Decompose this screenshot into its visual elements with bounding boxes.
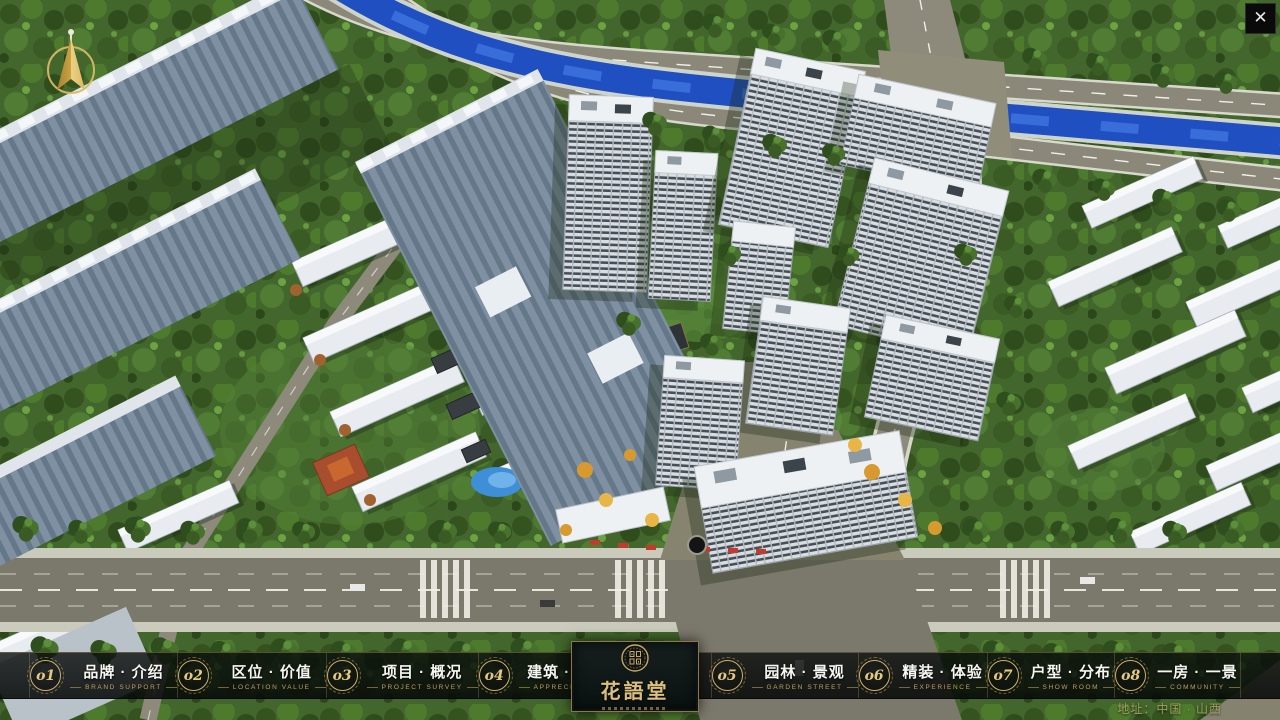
nav-title: 品牌 · 介绍 [83,661,163,682]
nav-item-room-views[interactable]: o8 一房 · 一景 COMMUNITY [1114,653,1239,698]
masterplan-render [0,0,1280,720]
nav-badge-08: o8 [1115,660,1146,691]
address-label: 地址：中国 · 山西 [1117,700,1222,717]
nav-item-floorplans[interactable]: o7 户型 · 分布 SHOW ROOM [987,653,1115,698]
close-button[interactable]: ✕ [1245,3,1276,34]
nav-number: o1 [36,668,55,684]
project-logo-panel[interactable]: 花語堂 [571,641,699,712]
nav-title: 区位 · 价值 [232,661,312,682]
nav-title: 项目 · 概况 [382,661,462,682]
nav-badge-03: o3 [327,660,358,691]
nav-badge-02: o2 [178,660,209,691]
nav-number: o7 [993,668,1012,684]
nav-subtitle: COMMUNITY [1155,684,1239,691]
navbar-right-pad [1240,653,1280,698]
project-logo-title: 花語堂 [601,675,670,704]
nav-badge-01: o1 [30,660,61,691]
project-emblem-icon [620,643,650,673]
nav-number: o8 [1121,668,1140,684]
nav-item-project-survey[interactable]: o3 项目 · 概况 PROJECT SURVEY [326,653,478,698]
project-logo-tagline [602,707,668,710]
nav-badge-05: o5 [712,660,743,691]
presentation-window: ✕ o1 品牌 · 介绍 BRAND SUPPORT o2 区位 · 价值 LO… [0,0,1280,720]
nav-subtitle: LOCATION VALUE [218,684,326,691]
nav-item-garden-landscape[interactable]: o5 园林 · 景观 GARDEN STREET [711,653,858,698]
nav-subtitle: EXPERIENCE [899,684,987,691]
nav-number: o6 [865,668,884,684]
nav-number: o4 [485,668,504,684]
navbar-left-pad [0,653,29,698]
nav-number: o5 [718,668,737,684]
nav-item-location-value[interactable]: o2 区位 · 价值 LOCATION VALUE [177,653,326,698]
nav-subtitle: BRAND SUPPORT [70,684,177,691]
nav-item-interior-experience[interactable]: o6 精装 · 体验 EXPERIENCE [858,653,987,698]
close-icon: ✕ [1253,10,1267,27]
nav-subtitle: GARDEN STREET [752,684,858,691]
nav-number: o2 [184,668,203,684]
nav-title: 园林 · 景观 [764,661,844,682]
nav-title: 户型 · 分布 [1031,661,1111,682]
nav-subtitle: PROJECT SURVEY [367,684,478,691]
nav-badge-06: o6 [859,660,890,691]
nav-badge-04: o4 [479,660,510,691]
nav-title: 精装 · 体验 [902,661,982,682]
nav-item-brand-intro[interactable]: o1 品牌 · 介绍 BRAND SUPPORT [29,653,177,698]
nav-subtitle: SHOW ROOM [1028,684,1115,691]
nav-title: 一房 · 一景 [1157,661,1237,682]
nav-badge-07: o7 [988,660,1019,691]
nav-number: o3 [333,668,352,684]
